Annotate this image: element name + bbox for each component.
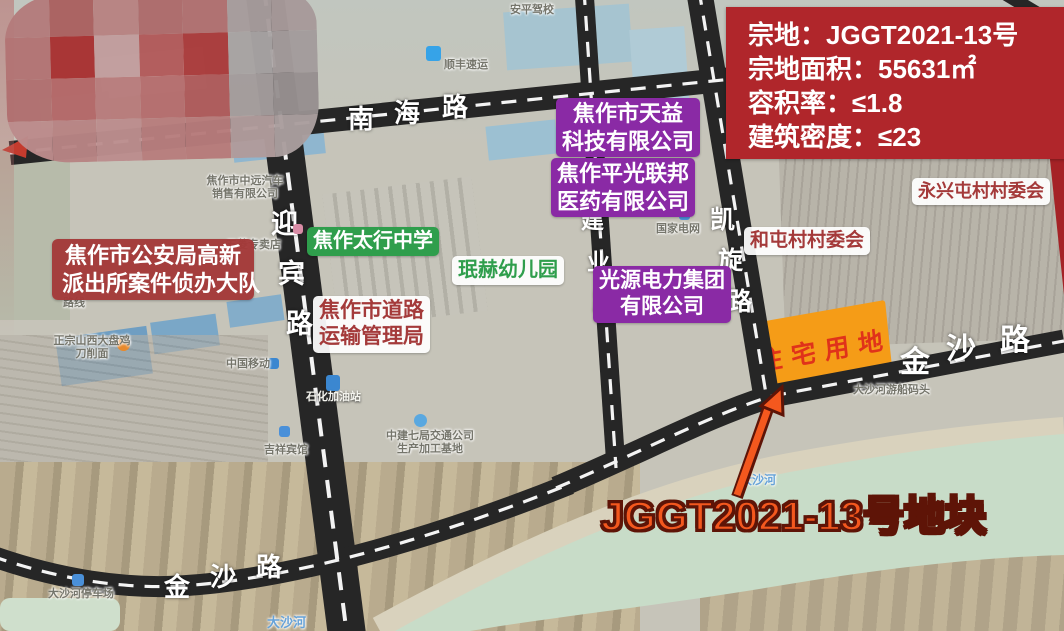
- mosaic-cell: [183, 32, 229, 75]
- mosaic-cell: [93, 0, 139, 36]
- map-canvas[interactable]: 住宅用地 南 海 路 迎 宾 路 建 业 路 凯 旋 路 金 沙: [0, 0, 1064, 631]
- poi-parking: 大沙河停车场: [48, 588, 114, 601]
- road-label-nanhai: 海: [394, 100, 420, 126]
- mosaic-cell: [140, 75, 186, 118]
- label-pingguang-company: 焦作平光联邦 医药有限公司: [551, 158, 695, 217]
- mosaic-cell: [271, 0, 317, 31]
- mosaic-cell: [230, 115, 276, 158]
- mosaic-cell: [139, 33, 185, 76]
- road-label-nanhai: 南: [348, 106, 374, 132]
- info-parcel-area: 宗地面积：55631㎡: [748, 52, 1064, 86]
- mosaic-cell: [52, 120, 98, 163]
- mosaic-cell: [94, 35, 140, 78]
- mosaic-cell: [141, 117, 187, 160]
- road-label-kaixuan: 凯: [710, 208, 735, 233]
- mosaic-cell: [228, 31, 274, 74]
- parking-icon: [72, 574, 84, 586]
- road-label-yingbin: 路: [286, 311, 313, 338]
- info-parcel-id: 宗地：JGGT2021-13号: [748, 18, 1064, 52]
- poi-car-dealer: 焦作市中远汽车销售有限公司: [183, 175, 307, 201]
- poi-sf-express: 顺丰速运: [444, 59, 488, 72]
- info-building-density: 建筑密度：≤23: [748, 120, 1064, 154]
- mosaic-cell: [48, 0, 94, 37]
- poi-restaurant: 正宗山西大盘鸡刀削面: [52, 335, 132, 361]
- mosaic-cell: [184, 74, 230, 117]
- road-label-jinsha-west: 路: [256, 554, 282, 580]
- mosaic-cell: [185, 116, 231, 159]
- label-transport-bureau: 焦作市道路 运输管理局: [313, 296, 430, 353]
- road-label-jinsha-east: 路: [1000, 326, 1030, 356]
- poi-boat-dock: 大沙河游船码头: [853, 384, 930, 397]
- mosaic-cell: [138, 0, 184, 35]
- road-label-nanhai: 路: [442, 94, 468, 120]
- label-minhe-kindergarten: 珉赫幼儿园: [452, 256, 564, 285]
- farm-fields-southeast: [700, 555, 1064, 631]
- label-police-station: 焦作市公安局高新 派出所案件侦办大队: [52, 239, 254, 300]
- poi-driving-school: 安平驾校: [510, 4, 554, 17]
- mosaic-cell: [51, 78, 97, 121]
- mosaic-cell: [6, 79, 52, 122]
- road-label-jinsha-west: 沙: [210, 564, 236, 590]
- company-icon: [414, 414, 427, 427]
- poi-hotel: 吉祥宾馆: [264, 444, 308, 457]
- shop-icon: [293, 224, 303, 234]
- label-guangyuan-company: 光源电力集团 有限公司: [593, 266, 731, 323]
- road-label-yingbin: 宾: [278, 261, 305, 288]
- info-plot-ratio: 容积率：≤1.8: [748, 86, 1064, 120]
- poi-state-grid: 国家电网: [656, 223, 700, 236]
- label-taihang-school: 焦作太行中学: [307, 227, 439, 256]
- mosaic-cell: [182, 0, 228, 33]
- poi-cscec: 中建七局交通公司生产加工基地: [384, 430, 476, 456]
- poi-china-mobile: 中国移动: [226, 358, 270, 371]
- road-label-jinsha-west: 金: [164, 574, 190, 600]
- mosaic-cell: [5, 37, 51, 80]
- poi-gas-station: 石化加油站: [306, 391, 361, 404]
- label-tianyi-company: 焦作市天益 科技有限公司: [556, 98, 700, 157]
- mosaic-cell: [272, 30, 318, 73]
- mosaic-cell: [96, 119, 142, 162]
- mosaic-cell: [227, 0, 273, 32]
- parcel-callout-text: JGGT2021-13号地块: [601, 482, 986, 542]
- label-yongxingtun-committee: 永兴屯村村委会: [912, 178, 1050, 205]
- parcel-info-box: 宗地：JGGT2021-13号 宗地面积：55631㎡ 容积率：≤1.8 建筑密…: [726, 7, 1064, 159]
- mosaic-cell: [50, 36, 96, 79]
- road-label-jinsha-east: 沙: [946, 335, 976, 365]
- label-hetun-committee: 和屯村村委会: [744, 227, 870, 255]
- parcel-land-use-label: 住宅用地: [747, 319, 894, 380]
- hotel-icon: [279, 426, 290, 437]
- mosaic-cell: [273, 72, 319, 115]
- censor-mosaic: [4, 0, 320, 164]
- mosaic-cell: [229, 73, 275, 116]
- mosaic-cell: [95, 77, 141, 120]
- sf-express-icon: [426, 46, 441, 61]
- gas-station-icon: [326, 375, 340, 391]
- poi-river-name: 大沙河: [267, 615, 306, 630]
- road-label-jinsha-east: 金: [900, 348, 930, 378]
- farm-fields-southwest: [0, 462, 640, 631]
- water-pool: [485, 119, 558, 160]
